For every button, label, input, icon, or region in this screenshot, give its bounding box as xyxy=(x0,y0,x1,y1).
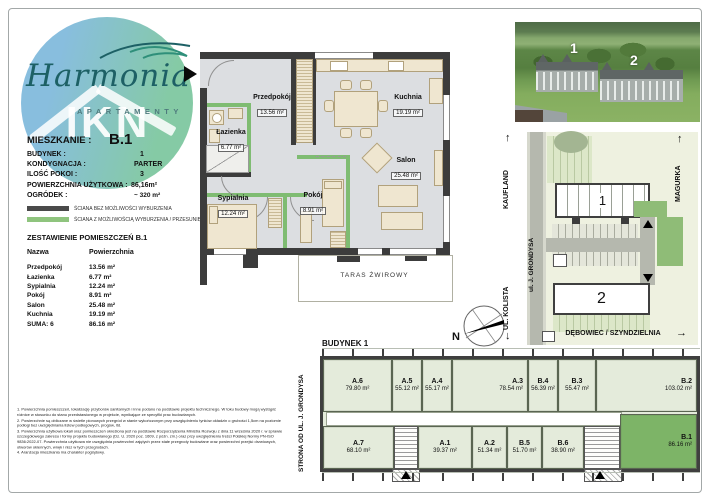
apartment-name: B.4 xyxy=(538,378,549,386)
dining-chair xyxy=(340,80,352,90)
kitchen-side-window xyxy=(443,95,450,140)
room-row-name: Łazienka xyxy=(27,274,54,281)
apartment-area: 39.37 m² xyxy=(433,448,457,455)
debowiec-arrow-icon: → xyxy=(676,328,687,339)
terrace-label: TARAS ŻWIROWY xyxy=(298,272,451,279)
apartment-cell-a4: A.4 55.17 m² xyxy=(422,359,452,412)
street-label-magurka: MAGURKA xyxy=(675,150,682,202)
room-label-sypialnia: Sypialnia 12.24 m² xyxy=(201,195,265,220)
building-entrance-marker xyxy=(595,471,605,479)
apartment-area: 55.17 m² xyxy=(425,386,449,393)
dining-chair xyxy=(324,100,334,112)
apartment-name: A.5 xyxy=(402,378,413,386)
apartment-cell-b5: B.5 51.70 m² xyxy=(507,426,542,469)
room-label-pokoj: Pokój 8.91 m² xyxy=(281,192,345,217)
flyer-page: IKN Harmonia APARTAMENTY MIESZKANIE : B.… xyxy=(0,0,707,500)
washer-drum xyxy=(212,113,222,123)
brand-name: Harmonia xyxy=(26,58,196,94)
photo-building-2 xyxy=(600,70,683,102)
legend-label: ŚCIANA BEZ MOŻLIWOŚCI WYBURZENIA xyxy=(74,206,172,212)
room-area: 25.48 m² xyxy=(391,172,421,180)
apartment-area: 79.80 m² xyxy=(346,386,370,393)
kitchen-stove xyxy=(330,61,348,71)
bedroom-window xyxy=(214,248,246,255)
room-area: 19.19 m² xyxy=(393,109,423,117)
info-row-label: POWIERZCHNIA UŻYTKOWA : xyxy=(27,182,128,189)
info-row-value: 86,16m² xyxy=(131,182,157,189)
street-label-grondysa: ul. J. GRONDYSA xyxy=(528,220,535,292)
dining-table xyxy=(334,91,378,127)
apartment-area: 103.02 m² xyxy=(665,386,692,393)
sitemap-tree xyxy=(554,131,588,153)
kitchen-sink xyxy=(388,61,404,71)
photo-label-2: 2 xyxy=(630,52,638,68)
kolista-arrow-icon: ↓ xyxy=(505,331,511,342)
room-row-area: 6.77 m² xyxy=(89,274,111,281)
room-label-salon: Salon 25.48 m² xyxy=(374,157,438,182)
sitemap-building-2: 2 xyxy=(553,283,650,315)
footnote-2: 2. Powierzchnie są obliczane w świetle p… xyxy=(17,419,289,429)
sitemap-building-1-label: 1 xyxy=(597,193,608,208)
stairwell xyxy=(584,426,620,469)
info-row-value: ~ 320 m² xyxy=(134,192,160,199)
apartment-area: 86.16 m² xyxy=(668,442,692,449)
room-area: 8.91 m² xyxy=(300,207,326,215)
apartment-cell-a1: A.1 39.37 m² xyxy=(418,426,472,469)
info-row-label: OGRÓDEK : xyxy=(27,192,67,199)
info-row-label: BUDYNEK : xyxy=(27,151,66,158)
apartment-name: B.5 xyxy=(519,440,530,448)
coffee-table xyxy=(381,212,423,230)
footnote-4: 4. Aranżacja mieszkania ma charakter pog… xyxy=(17,451,289,456)
dining-chair xyxy=(360,128,372,138)
room-area: 12.24 m² xyxy=(218,210,248,218)
legend-swatch-dark xyxy=(27,206,69,211)
room-row-name: Salon xyxy=(27,302,45,309)
apartment-name: B.3 xyxy=(572,378,583,386)
street-label-kolista: UL. KOLISTA xyxy=(503,272,510,330)
room-table-col-name: Nazwa xyxy=(27,249,49,256)
photo-gable xyxy=(602,62,612,70)
hall-salon-opening xyxy=(316,156,346,157)
info-row-value: PARTER xyxy=(134,161,162,168)
apartment-area: 55.12 m² xyxy=(395,386,419,393)
room-name: Kuchnia xyxy=(376,94,440,101)
sitemap-parking-row xyxy=(552,224,638,238)
apartment-cell-b3: B.3 55.47 m² xyxy=(558,359,596,412)
legend-label: ŚCIANA Z MOŻLIWOŚCIĄ WYBURZENIA / PRZESU… xyxy=(74,217,209,223)
room-row-area: 8.91 m² xyxy=(89,292,111,299)
apartment-area: 56.39 m² xyxy=(531,386,555,393)
photo-label-1: 1 xyxy=(570,40,578,56)
apartment-name: A.1 xyxy=(440,440,451,448)
sitemap-driveway-arrow xyxy=(643,220,653,228)
brand-subtitle: APARTAMENTY xyxy=(77,107,197,116)
room-row-name: Kuchnia xyxy=(27,311,53,318)
sitemap-road-horizontal xyxy=(546,238,646,252)
room-row-area: 13.56 m² xyxy=(89,264,115,271)
pokoj-pillow xyxy=(324,181,342,189)
apartment-name: B.2 xyxy=(681,378,692,386)
building-side-label: STRONA OD UL. J. GRONDYSA xyxy=(298,356,305,472)
room-name: Pokój xyxy=(281,192,345,199)
apartment-area: 55.47 m² xyxy=(565,386,589,393)
apartment-cell-b6: B.6 38.90 m² xyxy=(542,426,584,469)
footnote-1: 1. Powierzchnia pomieszczeń, lokalizację… xyxy=(17,408,289,418)
footnote-3: 3. Powierzchnia użytkowa lokali oraz pom… xyxy=(17,430,289,451)
apartment-name: A.4 xyxy=(432,378,443,386)
apartment-name: B.6 xyxy=(558,440,569,448)
apartment-name: A.6 xyxy=(352,378,363,386)
apartment-cell-a7: A.7 68.10 m² xyxy=(323,426,394,469)
magurka-arrow-icon: ↑ xyxy=(677,134,683,145)
pokoj-wardrobe xyxy=(330,231,346,248)
room-name: Salon xyxy=(374,157,438,164)
apartment-cell-a2: A.2 51.34 m² xyxy=(472,426,507,469)
compass-icon: N xyxy=(452,300,510,352)
room-table-title: ZESTAWIENIE POMIESZCZEŃ B.1 xyxy=(27,233,147,242)
room-area: 6.77 m² xyxy=(218,144,244,152)
room-row-name: Przedpokój xyxy=(27,264,62,271)
dining-chair xyxy=(360,80,372,90)
sitemap-small-building xyxy=(553,254,567,267)
room-label-przedpokoj: Przedpokój 13.56 m² xyxy=(240,94,304,119)
apartment-area: 68.10 m² xyxy=(347,448,371,455)
building-plan-title: BUDYNEK 1 xyxy=(322,339,368,348)
salon-terrace-door xyxy=(390,248,436,255)
room-name: Przedpokój xyxy=(240,94,304,101)
apartment-area: 51.34 m² xyxy=(478,448,502,455)
apartment-area: 38.90 m² xyxy=(551,448,575,455)
room-row-area: 12.24 m² xyxy=(89,283,115,290)
apartment-cell-a5: A.5 55.12 m² xyxy=(392,359,422,412)
footnotes: 1. Powierzchnia pomieszczeń, lokalizację… xyxy=(17,408,289,457)
apartment-area: 78.54 m² xyxy=(499,386,523,393)
room-row-name: SUMA: 6 xyxy=(27,321,54,328)
apartment-area: 51.70 m² xyxy=(513,448,537,455)
wall-entry-corner xyxy=(200,52,216,59)
room-label-lazienka: Łazienka 6.77 m² xyxy=(199,129,263,154)
info-row-label: ILOŚĆ POKOI : xyxy=(27,171,77,178)
apartment-name: B.1 xyxy=(681,434,692,442)
kaufland-arrow-icon: ↑ xyxy=(505,133,511,144)
pokoj-window xyxy=(358,248,382,255)
svg-text:N: N xyxy=(452,331,460,343)
pokoj-salon-divider xyxy=(346,155,350,248)
apartment-id-value: B.1 xyxy=(109,131,132,148)
info-row-label: KONDYGNACJA : xyxy=(27,161,86,168)
photo-gable xyxy=(538,54,548,62)
room-name: Sypialnia xyxy=(201,195,265,202)
apartment-name: A.3 xyxy=(512,378,523,386)
apartment-cell-b1-highlighted: B.1 86.16 m² xyxy=(620,414,697,469)
salon-side-window xyxy=(443,196,450,242)
photo-roof xyxy=(515,110,543,122)
entrance-arrow-icon xyxy=(184,66,197,82)
apartment-cell-b4: B.4 56.39 m² xyxy=(528,359,558,412)
apartment-cell-a6: A.6 79.80 m² xyxy=(323,359,392,412)
bedroom-dresser xyxy=(268,198,282,228)
room-area: 13.56 m² xyxy=(257,109,287,117)
photo-building-1 xyxy=(536,62,598,92)
stairwell xyxy=(394,426,418,469)
sitemap-driveway-arrow xyxy=(643,274,653,282)
street-label-kaufland: KAUFLAND xyxy=(503,147,510,209)
room-name: Łazienka xyxy=(199,129,263,136)
street-label-debowiec: DĘBOWIEC / SZYNDZIELNIA xyxy=(552,330,674,337)
sitemap-green-patch xyxy=(634,201,667,217)
kitchen-window xyxy=(315,52,373,59)
sitemap-building-2-label: 2 xyxy=(597,290,606,308)
apartment-name: A.7 xyxy=(353,440,364,448)
room-label-kuchnia: Kuchnia 19.19 m² xyxy=(376,94,440,119)
room-row-area: 19.19 m² xyxy=(89,311,115,318)
terrace-wall-stub xyxy=(243,255,258,268)
legend-swatch-green xyxy=(27,217,69,222)
balcony-ticks-bottom xyxy=(322,472,700,481)
photo-gable xyxy=(644,62,654,70)
apartment-id-label: MIESZKANIE : xyxy=(27,135,91,146)
sitemap-green-patch xyxy=(657,217,683,266)
room-row-area: 86.16 m² xyxy=(89,321,115,328)
room-row-area: 25.48 m² xyxy=(89,302,115,309)
room-row-name: Pokój xyxy=(27,292,45,299)
apartment-cell-b2: B.2 103.02 m² xyxy=(596,359,697,412)
info-row-value: 1 xyxy=(140,151,144,158)
terrace-wall-stub xyxy=(200,255,207,285)
info-row-value: 3 xyxy=(140,171,144,178)
building-corridor xyxy=(326,412,622,426)
building-entrance-marker xyxy=(401,471,411,479)
room-table-col-area: Powierzchnia xyxy=(89,249,134,256)
apartment-name: A.2 xyxy=(484,440,495,448)
dining-chair xyxy=(340,128,352,138)
room-row-name: Sypialnia xyxy=(27,283,56,290)
sofa xyxy=(378,185,418,207)
apartment-cell-a3: A.3 78.54 m² xyxy=(452,359,528,412)
